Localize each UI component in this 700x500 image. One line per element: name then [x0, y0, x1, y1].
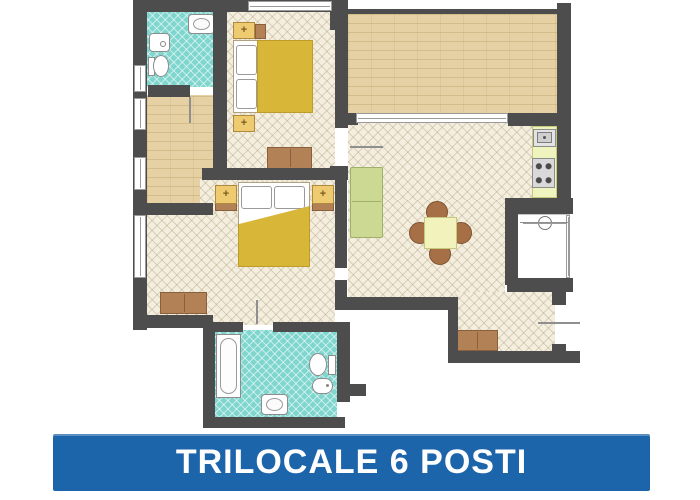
- loggia-dim-line: [520, 222, 568, 223]
- bed1-pillow-2: [236, 79, 257, 109]
- bath2-toilet-bowl: [309, 353, 327, 376]
- bed1-dresser: [267, 147, 312, 169]
- wall-right-outer: [557, 3, 571, 206]
- loggia-washbasin: [531, 214, 559, 232]
- plan-title-banner: TRILOCALE 6 POSTI: [53, 434, 650, 491]
- window-hall-1: [134, 98, 146, 130]
- wall-bath1-bottom: [148, 85, 190, 97]
- door-entrance-leaf: [538, 322, 580, 324]
- wall-bath2-stub: [350, 384, 366, 396]
- window-bath1: [134, 65, 146, 92]
- wall-right-door-top: [552, 292, 566, 305]
- terrace-pillar-left: [330, 6, 348, 30]
- sofa: [350, 167, 383, 238]
- entry-cabinet: [456, 330, 498, 351]
- bath2-bidet: [312, 378, 333, 394]
- window-bed1-top: [248, 1, 332, 11]
- bed1-blanket: [257, 40, 313, 113]
- bath1-sink: [188, 14, 215, 34]
- bed2-pillow-2: [274, 186, 305, 209]
- wall-bed1-left: [213, 0, 227, 170]
- floorplan: [0, 0, 700, 500]
- bed2-nightstand-left-shelf: [215, 203, 237, 211]
- terrace-railing: [348, 9, 557, 14]
- wall-hall-bottom: [133, 203, 213, 215]
- bed2-dresser: [160, 292, 207, 314]
- wall-bath2-top-left: [213, 322, 243, 332]
- bed2-nightstand-left: [215, 185, 237, 204]
- wall-loggia-left: [505, 213, 518, 285]
- bed2-nightstand-right-shelf: [312, 203, 334, 211]
- door-bath2-leaf: [256, 300, 258, 324]
- kitchen-stove: [532, 158, 555, 188]
- door-bath1-leaf: [189, 97, 191, 123]
- bed2-pillow-1: [241, 186, 272, 209]
- wall-living-bottom-right: [448, 351, 566, 363]
- wall-living-bottom-left: [337, 297, 458, 310]
- terrace-floor: [348, 14, 557, 114]
- wall-bed2-bottom: [133, 315, 213, 328]
- page: TRILOCALE 6 POSTI: [0, 0, 700, 500]
- wall-bed2-living-a: [335, 180, 347, 268]
- window-loggia-edge: [566, 215, 570, 278]
- bath2-sink: [261, 394, 288, 415]
- bed2-nightstand-right: [312, 185, 334, 204]
- bath2-toilet-tank: [328, 355, 336, 375]
- wall-entry-stub: [566, 351, 580, 363]
- door-bed1-leaf: [350, 146, 383, 148]
- window-hall-2: [134, 157, 146, 190]
- bed1-pillow-1: [236, 45, 257, 75]
- dining-table: [424, 217, 457, 249]
- wall-bath2-top-right: [273, 322, 337, 332]
- plan-title: TRILOCALE 6 POSTI: [176, 443, 527, 482]
- bed1-nightstand-side: [255, 24, 266, 39]
- wall-right-door-bottom: [552, 344, 566, 363]
- bed1-nightstand-bottom: [233, 115, 255, 132]
- window-bed2: [134, 215, 146, 278]
- bath1-toilet-bowl: [153, 55, 169, 77]
- bath2-tub: [216, 334, 241, 398]
- wall-bath2-bottom: [203, 417, 345, 428]
- window-terrace-door: [356, 113, 508, 123]
- bath1-washer: [149, 33, 170, 52]
- wall-junction: [330, 166, 348, 180]
- wall-bedroom-divider: [202, 168, 345, 180]
- wall-terrace-living-right: [508, 113, 557, 126]
- kitchen-sink: [533, 129, 556, 147]
- bed1-nightstand-top: [233, 22, 255, 39]
- wall-bath2-left: [203, 328, 215, 420]
- wall-bath2-right: [337, 322, 350, 402]
